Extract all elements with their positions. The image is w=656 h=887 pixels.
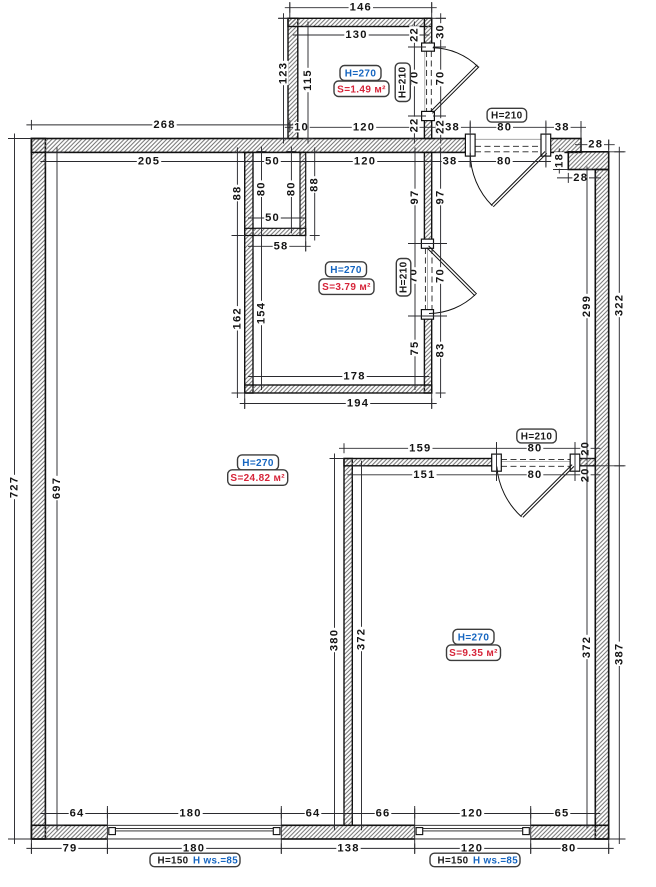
svg-text:299: 299: [581, 295, 593, 317]
svg-text:80: 80: [528, 442, 543, 454]
svg-text:38: 38: [443, 156, 458, 168]
svg-text:120: 120: [353, 121, 375, 133]
svg-text:28: 28: [573, 172, 588, 184]
svg-text:S=3.79 м²: S=3.79 м²: [322, 282, 371, 293]
svg-text:64: 64: [70, 808, 85, 820]
svg-text:70: 70: [435, 268, 447, 283]
svg-text:387: 387: [613, 643, 625, 665]
svg-text:58: 58: [274, 240, 289, 252]
svg-text:50: 50: [265, 156, 280, 168]
svg-text:38: 38: [555, 121, 570, 133]
svg-text:H=270: H=270: [330, 264, 362, 275]
svg-text:H=210: H=210: [521, 431, 553, 442]
svg-text:83: 83: [435, 343, 447, 358]
svg-text:20: 20: [580, 467, 592, 482]
svg-text:H=270: H=270: [458, 632, 490, 643]
svg-text:80: 80: [562, 842, 577, 854]
svg-text:151: 151: [413, 469, 435, 481]
svg-text:380: 380: [329, 629, 341, 651]
svg-text:10: 10: [294, 121, 309, 133]
svg-text:80: 80: [528, 469, 543, 481]
svg-text:88: 88: [231, 186, 243, 201]
svg-text:H=210: H=210: [397, 66, 408, 98]
svg-text:194: 194: [347, 398, 369, 410]
svg-text:66: 66: [376, 808, 391, 820]
svg-text:180: 180: [179, 808, 201, 820]
svg-text:88: 88: [309, 177, 321, 192]
svg-text:80: 80: [497, 121, 512, 133]
svg-text:178: 178: [343, 371, 365, 383]
svg-text:65: 65: [555, 808, 570, 820]
svg-text:75: 75: [409, 341, 421, 356]
svg-text:80: 80: [497, 156, 512, 168]
svg-text:S=24.82 м²: S=24.82 м²: [230, 473, 285, 484]
svg-text:130: 130: [345, 29, 367, 41]
svg-text:64: 64: [306, 808, 321, 820]
svg-text:22: 22: [408, 118, 420, 133]
svg-text:38: 38: [445, 121, 460, 133]
svg-text:80: 80: [256, 181, 268, 196]
svg-text:79: 79: [63, 842, 78, 854]
svg-text:97: 97: [435, 190, 447, 205]
svg-text:159: 159: [409, 442, 431, 454]
svg-text:205: 205: [138, 156, 160, 168]
svg-text:97: 97: [409, 190, 421, 205]
svg-text:146: 146: [350, 2, 372, 14]
svg-text:H=150: H=150: [438, 855, 469, 866]
svg-text:H ws.=85: H ws.=85: [473, 855, 518, 866]
svg-text:120: 120: [461, 808, 483, 820]
svg-text:H ws.=85: H ws.=85: [193, 855, 238, 866]
svg-text:18: 18: [553, 153, 565, 168]
svg-text:50: 50: [265, 212, 280, 224]
svg-text:70: 70: [435, 71, 447, 86]
svg-text:20: 20: [580, 441, 592, 456]
svg-text:322: 322: [613, 294, 625, 316]
svg-text:268: 268: [153, 119, 175, 131]
svg-text:138: 138: [337, 842, 359, 854]
svg-text:22: 22: [408, 27, 420, 42]
svg-text:372: 372: [356, 628, 368, 650]
svg-text:S=1.49 м²: S=1.49 м²: [337, 84, 386, 95]
svg-text:123: 123: [278, 62, 290, 84]
svg-text:115: 115: [302, 69, 314, 91]
svg-text:28: 28: [588, 139, 603, 151]
svg-text:162: 162: [231, 307, 243, 329]
svg-text:120: 120: [354, 156, 376, 168]
svg-text:H=210: H=210: [398, 261, 409, 293]
svg-text:727: 727: [9, 476, 21, 498]
svg-text:372: 372: [581, 636, 593, 658]
svg-text:H=210: H=210: [491, 110, 523, 121]
svg-text:154: 154: [256, 302, 268, 324]
svg-text:30: 30: [435, 24, 447, 39]
svg-text:S=9.35 м²: S=9.35 м²: [449, 648, 498, 659]
svg-text:80: 80: [285, 181, 297, 196]
svg-text:H=270: H=270: [242, 457, 274, 468]
svg-text:H=270: H=270: [345, 68, 377, 79]
svg-text:697: 697: [51, 477, 63, 499]
svg-text:H=150: H=150: [158, 855, 189, 866]
